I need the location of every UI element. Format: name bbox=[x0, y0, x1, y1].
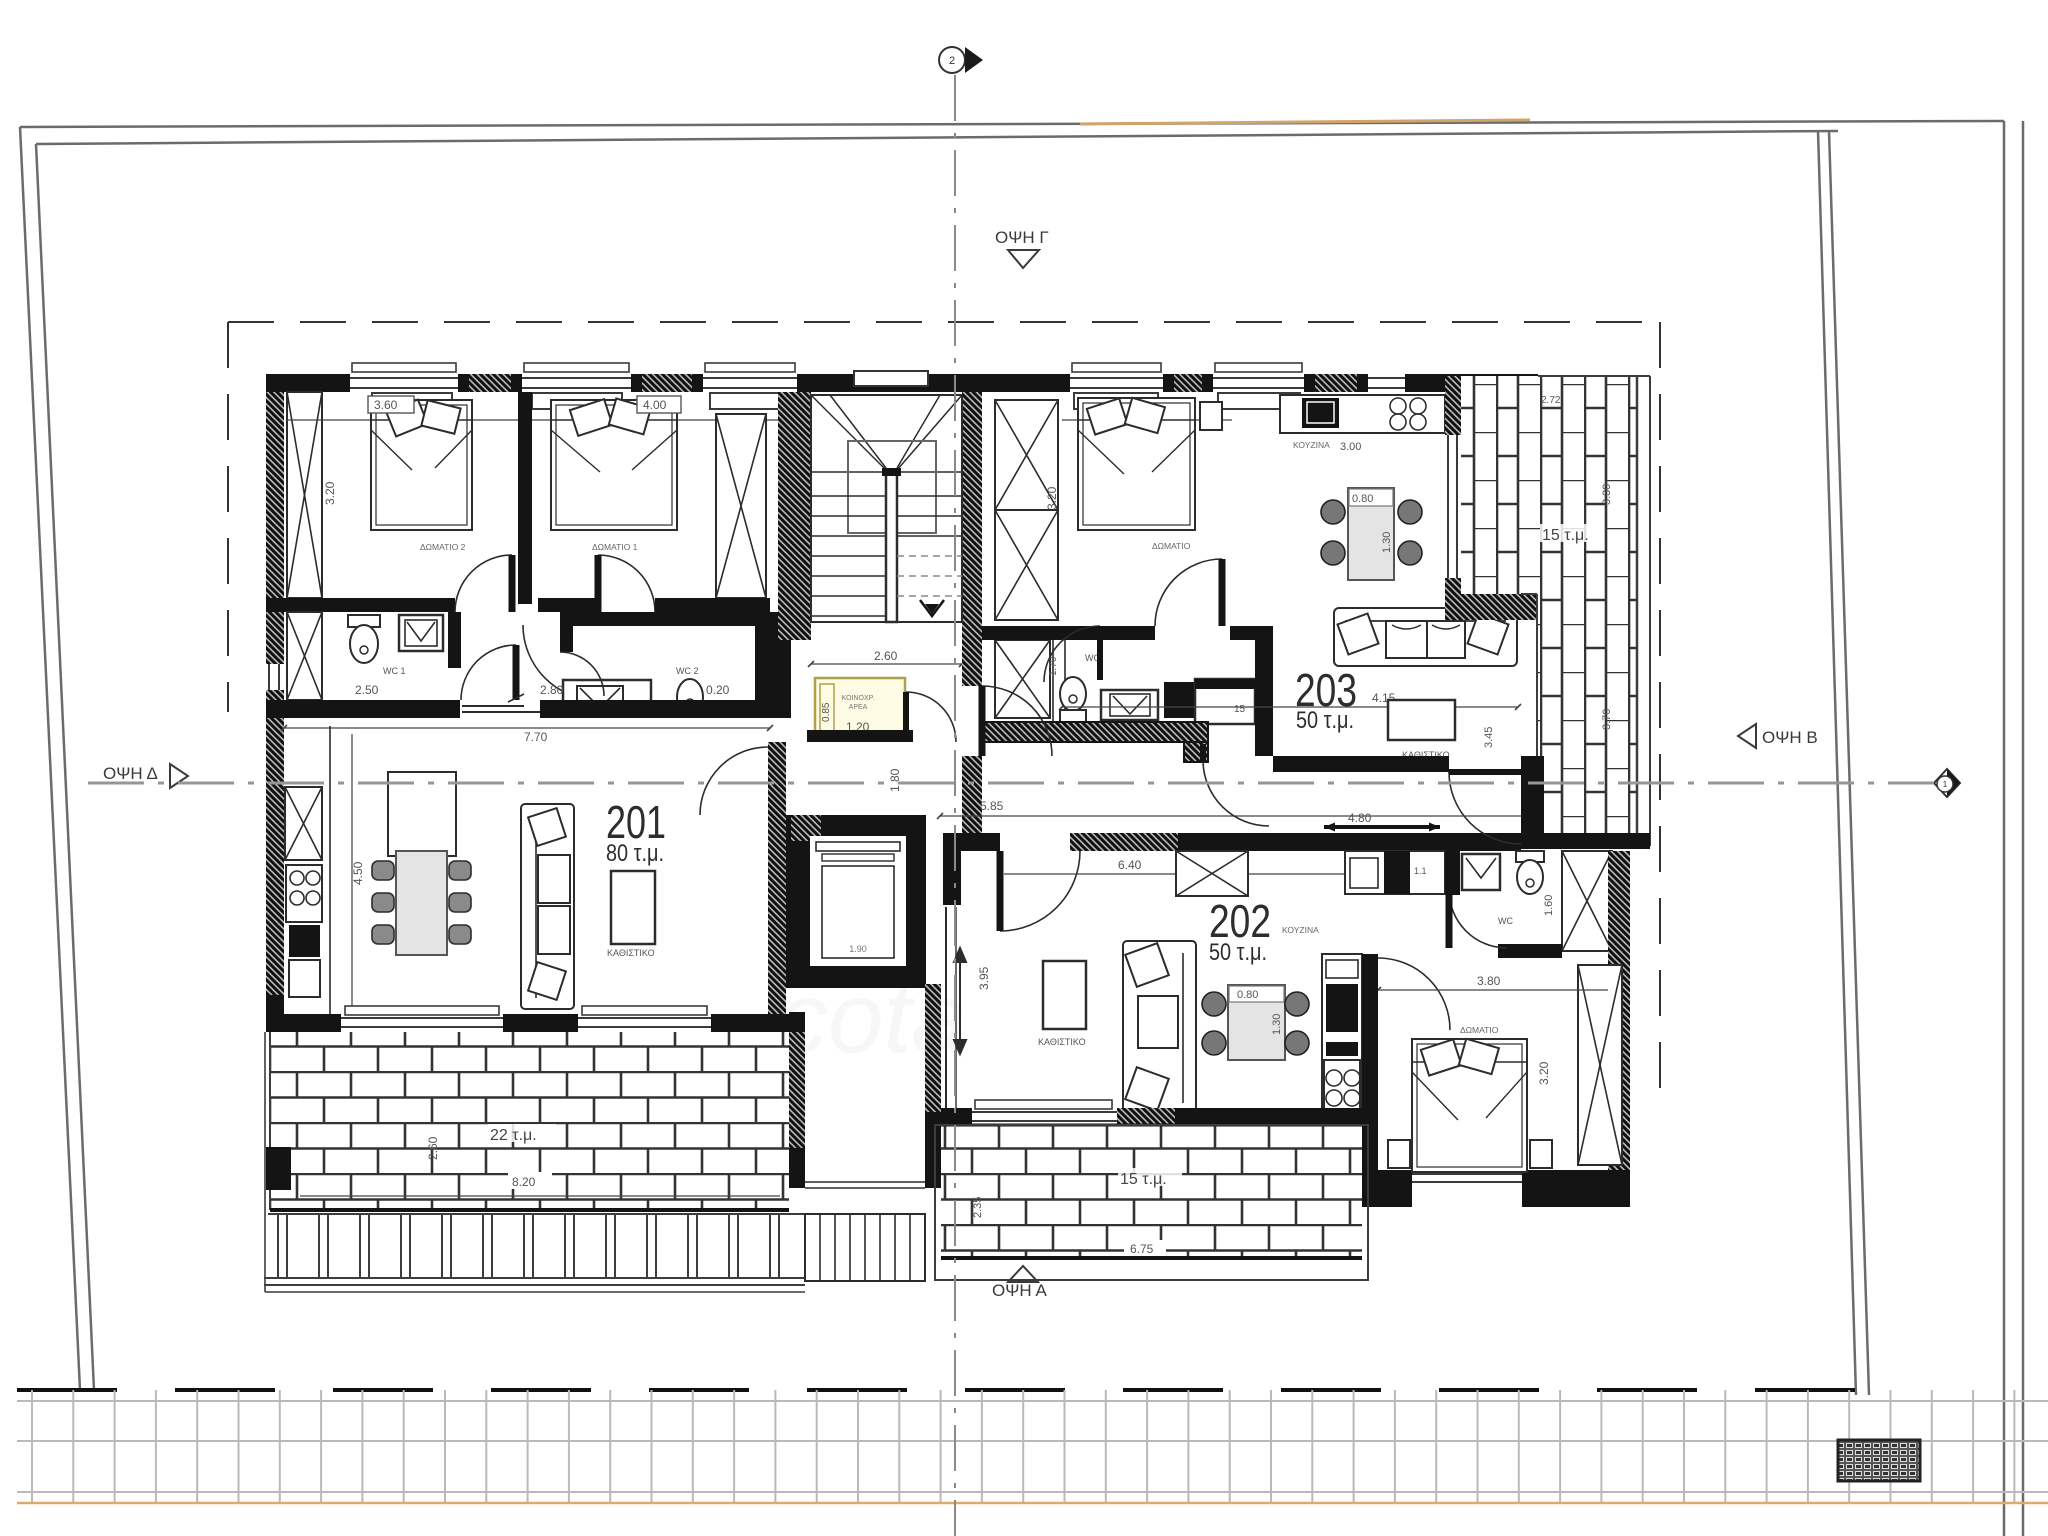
svg-text:1.60: 1.60 bbox=[1543, 895, 1555, 916]
svg-text:ΔΩΜΑΤΙΟ 1: ΔΩΜΑΤΙΟ 1 bbox=[592, 542, 638, 552]
svg-text:3.20: 3.20 bbox=[1537, 1061, 1551, 1085]
svg-text:4.50: 4.50 bbox=[351, 861, 365, 885]
svg-text:1: 1 bbox=[1943, 780, 1948, 789]
svg-text:WC: WC bbox=[1498, 916, 1513, 926]
svg-text:4.00: 4.00 bbox=[643, 398, 667, 412]
svg-text:2.60: 2.60 bbox=[874, 649, 898, 663]
svg-text:3.70: 3.70 bbox=[1601, 709, 1613, 730]
svg-text:3.20: 3.20 bbox=[323, 481, 337, 505]
svg-text:WC 2: WC 2 bbox=[676, 666, 699, 676]
svg-text:0.80: 0.80 bbox=[1237, 989, 1258, 1001]
svg-text:50 τ.μ.: 50 τ.μ. bbox=[1209, 939, 1267, 966]
svg-text:2.35: 2.35 bbox=[972, 1197, 984, 1218]
svg-text:WC 1: WC 1 bbox=[383, 666, 406, 676]
svg-text:7.70: 7.70 bbox=[524, 730, 548, 744]
svg-text:ΔΩΜΑΤΙΟ 2: ΔΩΜΑΤΙΟ 2 bbox=[420, 542, 466, 552]
svg-text:3.60: 3.60 bbox=[374, 398, 398, 412]
svg-text:4.80: 4.80 bbox=[1348, 811, 1372, 825]
svg-text:ΟΨΗ Γ: ΟΨΗ Γ bbox=[995, 228, 1049, 247]
svg-text:2.50: 2.50 bbox=[355, 683, 379, 697]
svg-text:22 τ.μ.: 22 τ.μ. bbox=[490, 1127, 537, 1144]
svg-text:ΚΟΥΖΙΝΑ: ΚΟΥΖΙΝΑ bbox=[1293, 440, 1330, 450]
svg-text:ΑΡΕΑ: ΑΡΕΑ bbox=[849, 704, 868, 711]
svg-text:ΚΟΙΝΟΧΡ.: ΚΟΙΝΟΧΡ. bbox=[842, 695, 875, 702]
svg-text:80 τ.μ.: 80 τ.μ. bbox=[606, 840, 664, 867]
svg-text:15 τ.μ.: 15 τ.μ. bbox=[1120, 1171, 1167, 1188]
svg-text:3.30: 3.30 bbox=[1601, 484, 1613, 505]
svg-text:3.00: 3.00 bbox=[1340, 441, 1361, 453]
svg-text:ΟΨΗ Α: ΟΨΗ Α bbox=[992, 1281, 1047, 1300]
svg-text:1.30: 1.30 bbox=[1381, 532, 1393, 553]
svg-text:2: 2 bbox=[949, 55, 955, 67]
svg-text:5.85: 5.85 bbox=[980, 799, 1004, 813]
svg-text:0.85: 0.85 bbox=[821, 702, 832, 722]
svg-text:15 τ.μ.: 15 τ.μ. bbox=[1542, 527, 1589, 544]
svg-text:ΟΨΗ Β: ΟΨΗ Β bbox=[1762, 728, 1818, 747]
svg-text:8.20: 8.20 bbox=[512, 1175, 536, 1189]
svg-text:2.80: 2.80 bbox=[540, 683, 564, 697]
svg-text:1.1: 1.1 bbox=[1414, 866, 1427, 876]
svg-text:2.72: 2.72 bbox=[1541, 395, 1561, 406]
svg-text:ΚΟΥΖΙΝΑ: ΚΟΥΖΙΝΑ bbox=[1282, 925, 1319, 935]
svg-text:6.40: 6.40 bbox=[1118, 858, 1142, 872]
svg-text:1.70: 1.70 bbox=[1048, 656, 1059, 676]
svg-text:3.80: 3.80 bbox=[1477, 974, 1501, 988]
svg-text:ΔΩΜΑΤΙΟ: ΔΩΜΑΤΙΟ bbox=[1460, 1025, 1499, 1035]
svg-text:3.95: 3.95 bbox=[977, 966, 991, 990]
svg-text:50 τ.μ.: 50 τ.μ. bbox=[1296, 707, 1354, 734]
svg-text:1.80: 1.80 bbox=[888, 768, 902, 792]
svg-text:3.20: 3.20 bbox=[1045, 486, 1059, 510]
svg-text:15: 15 bbox=[1234, 704, 1246, 715]
svg-text:2.60: 2.60 bbox=[426, 1136, 440, 1160]
svg-text:6.75: 6.75 bbox=[1130, 1242, 1154, 1256]
svg-text:0.20: 0.20 bbox=[706, 683, 730, 697]
svg-text:1.30: 1.30 bbox=[1271, 1014, 1283, 1035]
svg-text:ΟΨΗ Δ: ΟΨΗ Δ bbox=[103, 764, 158, 783]
svg-text:1.90: 1.90 bbox=[849, 944, 867, 954]
svg-text:ΔΩΜΑΤΙΟ: ΔΩΜΑΤΙΟ bbox=[1152, 541, 1191, 551]
svg-text:0.80: 0.80 bbox=[1352, 493, 1373, 505]
svg-text:ΚΑΘΙΣΤΙΚΟ: ΚΑΘΙΣΤΙΚΟ bbox=[607, 948, 655, 958]
svg-text:ΚΑΘΙΣΤΙΚΟ: ΚΑΘΙΣΤΙΚΟ bbox=[1038, 1037, 1086, 1047]
svg-text:3.45: 3.45 bbox=[1483, 727, 1495, 748]
